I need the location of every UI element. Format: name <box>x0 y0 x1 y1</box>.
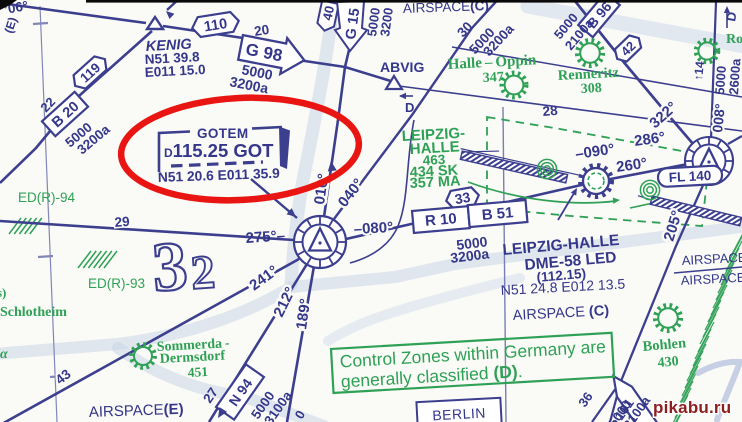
svg-text:pikabu.ru: pikabu.ru <box>653 398 731 417</box>
svg-text:ABVIG: ABVIG <box>380 59 424 75</box>
svg-text:AIRSPACE(E): AIRSPACE(E) <box>89 401 184 421</box>
svg-text:FL 140: FL 140 <box>668 168 711 185</box>
svg-text:Schlotheim: Schlotheim <box>0 305 67 320</box>
svg-text:D115.25 GOT: D115.25 GOT <box>164 140 274 161</box>
svg-text:α: α <box>0 347 8 362</box>
svg-text:AIRSPACE: AIRSPACE <box>681 250 742 268</box>
svg-text:3: 3 <box>150 228 190 307</box>
svg-text:008°: 008° <box>709 103 728 133</box>
svg-text:430: 430 <box>657 354 679 371</box>
svg-text:R 10: R 10 <box>424 210 457 230</box>
svg-text:2: 2 <box>189 245 217 300</box>
svg-text:AIRSPACE: AIRSPACE <box>680 270 742 288</box>
svg-text:275°–: 275°– <box>245 227 285 247</box>
svg-text:BERLIN: BERLIN <box>432 405 486 422</box>
svg-text:308: 308 <box>580 81 602 97</box>
svg-text:–080°: –080° <box>353 219 393 238</box>
svg-text:29: 29 <box>114 214 130 230</box>
svg-text:347: 347 <box>482 70 504 86</box>
svg-text:357 MA: 357 MA <box>409 173 461 192</box>
svg-text:28: 28 <box>542 103 559 119</box>
svg-text:40: 40 <box>320 4 338 21</box>
svg-text:s): s) <box>0 285 6 300</box>
svg-text:20: 20 <box>253 22 270 39</box>
svg-text:ED(R)-94: ED(R)-94 <box>18 190 75 205</box>
svg-text:451: 451 <box>187 364 208 380</box>
svg-text:E011 15.0: E011 15.0 <box>144 62 206 80</box>
svg-text:D: D <box>405 100 414 115</box>
svg-text:ED(R)-93: ED(R)-93 <box>88 276 145 291</box>
svg-text:Ro: Ro <box>726 32 742 47</box>
svg-text:B 51: B 51 <box>481 204 514 224</box>
svg-text:GOTEM: GOTEM <box>197 126 249 141</box>
svg-text:2600a: 2600a <box>726 57 742 95</box>
svg-text:↑14: ↑14 <box>691 60 707 81</box>
